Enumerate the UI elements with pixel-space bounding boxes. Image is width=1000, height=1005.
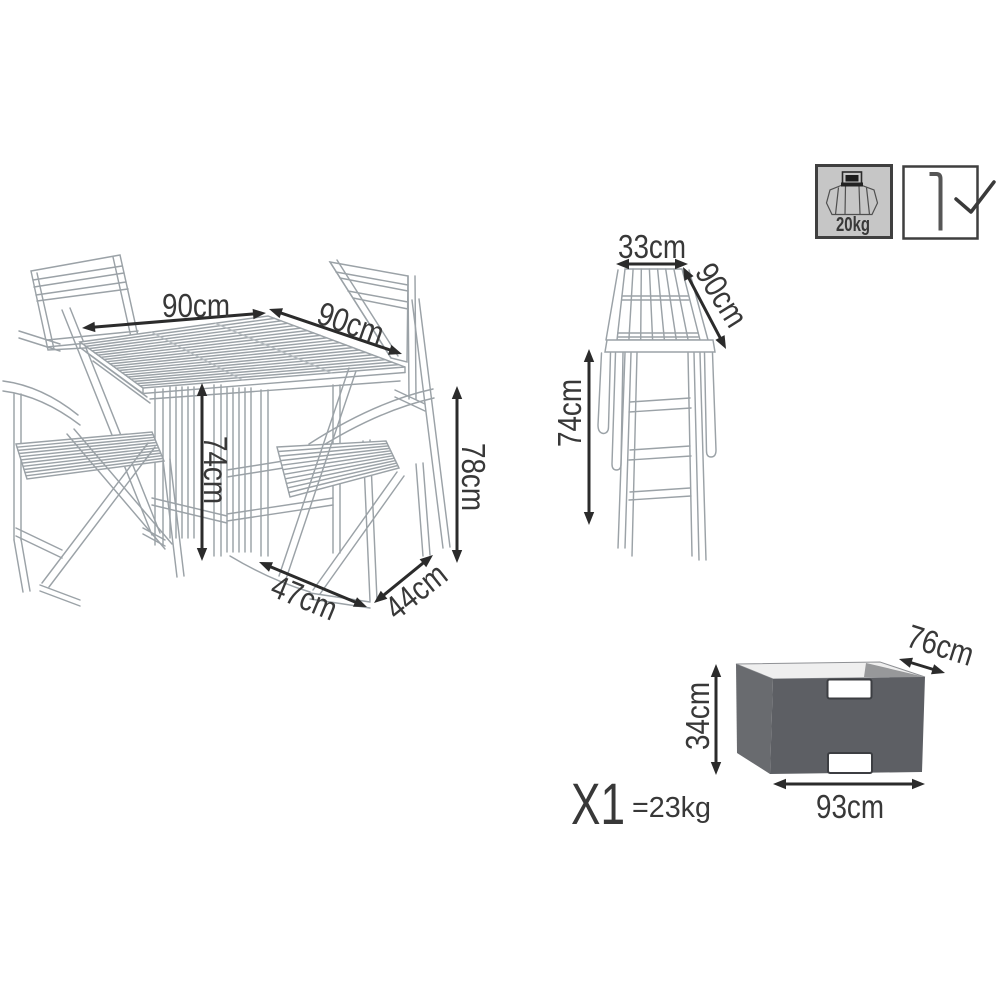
svg-text:X1: X1 <box>571 772 625 837</box>
svg-text:34cm: 34cm <box>679 682 716 750</box>
svg-text:74cm: 74cm <box>197 436 234 504</box>
svg-text:78cm: 78cm <box>455 443 492 511</box>
svg-text:44cm: 44cm <box>378 555 454 626</box>
svg-text:74cm: 74cm <box>551 379 588 447</box>
svg-text:20kg: 20kg <box>836 214 870 236</box>
svg-text:=23kg: =23kg <box>632 792 711 824</box>
svg-text:33cm: 33cm <box>618 228 686 265</box>
svg-text:93cm: 93cm <box>816 788 884 825</box>
svg-text:90cm: 90cm <box>162 287 230 324</box>
svg-text:47cm: 47cm <box>266 567 343 627</box>
